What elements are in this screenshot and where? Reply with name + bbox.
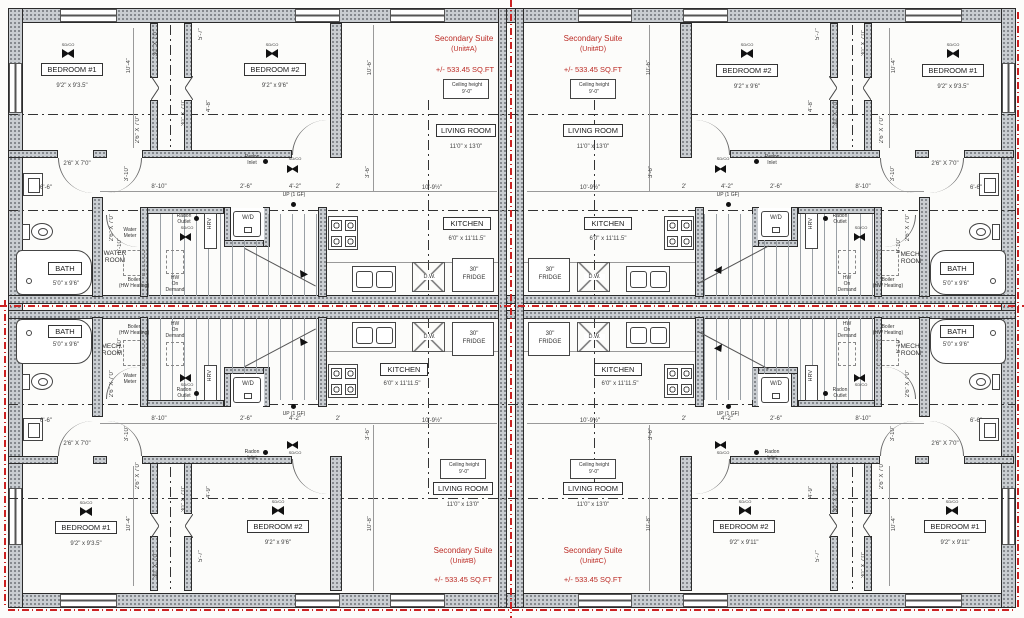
radon-point — [194, 216, 199, 221]
suite-title: Secondary Suite — [553, 34, 633, 43]
sdco-label: SD/CO — [74, 501, 98, 506]
hw-box — [166, 250, 184, 274]
wall — [330, 456, 342, 591]
kitchen-sink — [626, 322, 670, 348]
burner — [345, 384, 356, 395]
fridge-label: 30" — [453, 331, 495, 338]
dimension-label: 10'-4" — [126, 58, 132, 73]
wd-door — [772, 227, 780, 233]
radon-inlet-note: Inlet — [240, 456, 264, 462]
dimension-label: 2'-6" — [232, 416, 260, 422]
dimension-label: 10'-9½" — [412, 418, 452, 424]
suite-title: Secondary Suite — [423, 546, 503, 555]
sdco-label: SD/CO — [712, 451, 734, 456]
tub-drain — [26, 278, 32, 284]
door-size-label: 2'6" X 7'0" — [879, 462, 885, 489]
dimension-label: 2'-6" — [232, 184, 260, 190]
door-size-label: 2'6" X 7'0" — [109, 214, 115, 241]
dimension-label: 6'-10" — [117, 238, 123, 253]
up-label: UP (1 GF) — [712, 193, 744, 199]
closet-size-label: 30" X 7'0" — [153, 552, 159, 578]
closet-rod — [170, 25, 171, 147]
dimension-label: 4'-2" — [713, 184, 741, 190]
sdco-label: SD/CO — [176, 383, 198, 388]
water-meter-note: Meter — [118, 380, 142, 386]
burner — [681, 220, 692, 231]
smoke-detector-icon — [739, 506, 751, 515]
sdco-label: SD/CO — [733, 500, 757, 505]
window — [390, 9, 445, 22]
suite-area: +/- 533.45 SQ.FT — [552, 576, 634, 585]
radon-outlet-note: Outlet — [828, 220, 852, 226]
wall — [830, 536, 838, 591]
wall — [142, 456, 292, 464]
room-size-bedroom2: 9'2" x 9'6" — [717, 84, 777, 91]
room-size-bedroom1: 9'2" x 9'11" — [925, 540, 985, 547]
radon-point — [194, 391, 199, 396]
hrv-unit: HRV — [204, 365, 217, 401]
sink-bowl — [650, 327, 667, 344]
room-size-bath: 5'0" x 9'6" — [38, 342, 94, 349]
boiler-box — [123, 250, 145, 276]
dimension-label: 3'-6" — [648, 428, 654, 440]
smoke-detector-icon — [741, 49, 753, 58]
stove — [328, 364, 358, 398]
door-size-label: 2'6" X 7'0" — [926, 441, 964, 447]
dishwasher: D.W. — [412, 322, 445, 352]
toilet — [31, 373, 53, 390]
room-size-bedroom2: 9'2" x 9'6" — [245, 83, 305, 90]
room-label-bedroom2: BEDROOM #2 — [716, 64, 778, 77]
window — [578, 594, 632, 607]
hw-on-demand-note: Demand — [830, 288, 864, 294]
burner — [331, 220, 342, 231]
door-size-label: 2'6" X 7'0" — [109, 370, 115, 397]
closet-rod — [852, 25, 853, 147]
ceiling-line1: Ceiling height — [571, 463, 617, 469]
dimension-label: 3'-6" — [365, 166, 371, 178]
room-label-bath: BATH — [940, 325, 974, 338]
room-size-bedroom2: 9'2" x 9'6" — [248, 540, 308, 547]
room-label-bedroom1: BEDROOM #1 — [55, 521, 117, 534]
dimension-line — [889, 466, 890, 586]
dimension-label: 3'-6" — [648, 166, 654, 178]
room-size-kitchen: 6'0" x 11'11.5" — [591, 381, 649, 388]
closet-bifold-icon — [185, 76, 193, 100]
window — [390, 594, 445, 607]
dw-label: D.W. — [584, 334, 605, 340]
sdco-label: SD/CO — [712, 157, 734, 162]
door-size-label: 2'6" X 7'0" — [58, 161, 96, 167]
closet-size-label: 30" X 7'0" — [833, 100, 839, 126]
radon-point — [823, 216, 828, 221]
dimension-label: 2' — [332, 416, 344, 422]
suite-title: Secondary Suite — [553, 546, 633, 555]
room-size-bedroom1: 9'2" x 9'3.5" — [56, 541, 116, 548]
dw-label: D.W. — [584, 274, 605, 280]
burner — [681, 236, 692, 247]
room-label-bedroom1: BEDROOM #1 — [922, 64, 984, 77]
sink-bowl — [376, 271, 393, 288]
hrv-label: HRV — [207, 218, 213, 230]
wall — [184, 23, 192, 78]
wd-door — [244, 393, 252, 399]
dimension-line — [373, 425, 374, 591]
wd-label: W/D — [234, 215, 262, 222]
door-arc — [695, 120, 730, 155]
wall — [150, 456, 158, 514]
toilet-bowl — [976, 378, 986, 386]
dimension-label: 3'-10" — [890, 426, 896, 441]
suite-unit: (Unit#A) — [434, 46, 494, 54]
smoke-detector-icon — [62, 49, 74, 58]
burner — [681, 384, 692, 395]
dimension-label: 8'-10" — [843, 416, 883, 422]
wall — [142, 150, 292, 158]
closet-size-label: 30" X 7'0" — [861, 552, 867, 578]
suite-area: +/- 533.45 SQ.FT — [552, 66, 634, 75]
room-label-living: LIVING ROOM — [433, 482, 493, 495]
dimension-label: 6'-6" — [966, 418, 986, 424]
fire-separation-line — [510, 0, 512, 618]
window — [9, 63, 22, 113]
room-size-bath: 5'0" x 9'6" — [928, 281, 984, 288]
room-size-living: 11'0" x 13'0" — [437, 144, 495, 151]
window — [60, 594, 117, 607]
burner — [681, 368, 692, 379]
dimension-label: 6'-6" — [966, 185, 986, 191]
toilet-bowl — [976, 228, 986, 236]
dishwasher: D.W. — [577, 322, 610, 352]
dishwasher: D.W. — [577, 262, 610, 292]
wall — [730, 456, 880, 464]
wall — [318, 317, 327, 407]
toilet — [31, 223, 53, 240]
wall — [864, 456, 872, 514]
fridge: 30" FRIDGE — [528, 258, 570, 292]
sink-bowl — [630, 327, 647, 344]
smoke-detector-icon — [715, 441, 726, 449]
suite-unit: (Unit#D) — [563, 46, 623, 54]
radon-inlet-note: Inlet — [760, 161, 784, 167]
smoke-detector-icon — [80, 507, 92, 516]
ceiling-height-note: Ceiling height 9'-0" — [443, 79, 489, 99]
door-size-label: 2'6" X 7'0" — [905, 214, 911, 241]
fridge-label: FRIDGE — [529, 339, 571, 346]
smoke-detector-icon — [287, 165, 298, 173]
toilet-tank — [992, 374, 1000, 390]
radon-point — [263, 450, 268, 455]
wd-label: W/D — [762, 381, 790, 388]
room-label-living: LIVING ROOM — [436, 124, 496, 137]
washer-dryer: W/D — [233, 377, 261, 403]
dimension-label: 10'-4" — [126, 516, 132, 531]
wall — [830, 23, 838, 78]
window — [683, 9, 728, 22]
room-size-bedroom2: 9'2" x 9'11" — [714, 540, 774, 547]
floor-plan: W/D HRV D.W. 30" FRIDGE BATH 5'0" x 9'6"… — [0, 0, 1024, 618]
closet-bifold-icon — [185, 514, 193, 538]
dimension-line — [100, 191, 497, 192]
window — [295, 594, 340, 607]
smoke-detector-icon — [715, 165, 726, 173]
sdco-label: SD/CO — [940, 500, 964, 505]
closet-bifold-icon — [863, 76, 871, 100]
party-wall — [515, 8, 524, 608]
room-label-bedroom1: BEDROOM #1 — [924, 520, 986, 533]
wd-door — [244, 227, 252, 233]
toilet-tank — [992, 224, 1000, 240]
window — [905, 594, 962, 607]
room-size-bath: 5'0" x 9'6" — [38, 281, 94, 288]
up-point — [291, 404, 296, 409]
wall — [8, 8, 1016, 23]
hw-on-demand-note: Demand — [158, 288, 192, 294]
room-label-bath: BATH — [48, 325, 82, 338]
kitchen-sink — [626, 266, 670, 292]
boiler-note: (HW Heating) — [862, 331, 914, 337]
kitchen-sink — [352, 266, 396, 292]
room-size-bedroom1: 9'2" x 9'3.5" — [42, 83, 102, 90]
room-label-bath: BATH — [48, 262, 82, 275]
suite-title: Secondary Suite — [424, 34, 504, 43]
hw-box — [166, 342, 184, 366]
dimension-label: 3'-6" — [365, 428, 371, 440]
wall — [8, 150, 58, 158]
ceiling-line2: 9'-0" — [444, 90, 490, 96]
smoke-detector-icon — [266, 49, 278, 58]
room-label-bedroom2: BEDROOM #2 — [713, 520, 775, 533]
ceiling-line2: 9'-0" — [571, 470, 617, 476]
radon-point — [754, 450, 759, 455]
wall — [915, 150, 929, 158]
dimension-label: 5'-7" — [815, 28, 821, 40]
door-arc — [880, 421, 915, 456]
smoke-detector-icon — [946, 506, 958, 515]
sdco-label: SD/CO — [260, 43, 284, 48]
closet-bifold-icon — [829, 514, 837, 538]
hw-on-demand-note: Demand — [830, 334, 864, 340]
dimension-label: 6'-10" — [896, 338, 902, 353]
hrv-unit: HRV — [805, 365, 818, 401]
fire-separation-line — [4, 300, 6, 606]
fire-separation-line — [0, 305, 1024, 307]
party-wall — [8, 295, 1016, 304]
wall — [919, 317, 930, 417]
wall — [8, 593, 1016, 608]
room-size-bath: 5'0" x 9'6" — [928, 342, 984, 349]
closet-size-label: 30" X 7'0" — [833, 486, 839, 512]
suite-area: +/- 533.45 SQ.FT — [424, 66, 506, 75]
door-arc — [695, 459, 730, 494]
wall — [915, 456, 929, 464]
fridge-label: FRIDGE — [453, 275, 495, 282]
wall — [184, 536, 192, 591]
window — [578, 9, 632, 22]
dimension-label: 4'-8" — [206, 100, 212, 112]
dimension-label: 2'-6" — [762, 184, 790, 190]
washer-dryer: W/D — [233, 211, 261, 237]
dimension-label: 10'-6" — [646, 60, 652, 75]
wall — [964, 150, 1014, 158]
stove — [328, 216, 358, 250]
dimension-label: 2'-6" — [762, 416, 790, 422]
door-size-label: 2'6" X 7'0" — [905, 370, 911, 397]
dimension-label: 10'-8" — [646, 516, 652, 531]
sdco-label: SD/CO — [284, 157, 306, 162]
room-size-living: 11'0" x 13'0" — [564, 144, 622, 151]
door-arc — [292, 459, 327, 494]
fire-separation-line — [8, 609, 1016, 611]
kitchen-sink — [352, 322, 396, 348]
dimension-label: 4'-8" — [808, 100, 814, 112]
burner — [667, 368, 678, 379]
hrv-unit: HRV — [805, 213, 818, 249]
wd-label: W/D — [762, 215, 790, 222]
window — [60, 9, 117, 22]
ceiling-height-note: Ceiling height 9'-0" — [570, 79, 616, 99]
sink-bowl — [356, 271, 373, 288]
wall — [680, 23, 692, 158]
dimension-label: 3'-10" — [124, 426, 130, 441]
room-label-bedroom1: BEDROOM #1 — [41, 63, 103, 76]
closet-bifold-icon — [151, 76, 159, 100]
sink-bowl — [650, 271, 667, 288]
wall — [93, 150, 107, 158]
wall — [318, 207, 327, 297]
fridge-label: 30" — [529, 267, 571, 274]
dimension-label: 3'-10" — [124, 166, 130, 181]
sdco-label: SD/CO — [850, 226, 872, 231]
radon-point — [823, 391, 828, 396]
door-arc — [929, 421, 964, 456]
closet-size-label: 30" X 7'0" — [153, 30, 159, 56]
wd-label: W/D — [234, 381, 262, 388]
radon-point — [754, 159, 759, 164]
door-arc — [58, 421, 93, 456]
door-size-label: 2'6" X 7'0" — [926, 161, 964, 167]
closet-bifold-icon — [151, 514, 159, 538]
wall — [964, 456, 1014, 464]
smoke-detector-icon — [947, 49, 959, 58]
burner — [667, 384, 678, 395]
dimension-label: 8'-10" — [139, 184, 179, 190]
vanity-basin — [984, 423, 996, 438]
room-label-living: LIVING ROOM — [563, 482, 623, 495]
smoke-detector-icon — [287, 441, 298, 449]
boiler-box — [123, 340, 145, 366]
dimension-label: 5'-7" — [198, 550, 204, 562]
dw-label: D.W. — [419, 334, 440, 340]
fridge-label: FRIDGE — [453, 339, 495, 346]
washer-dryer: W/D — [761, 377, 789, 403]
closet-rod — [170, 467, 171, 589]
dimension-label: 6'-10" — [896, 238, 902, 253]
burner — [331, 384, 342, 395]
sink-bowl — [356, 327, 373, 344]
room-size-bedroom1: 9'2" x 9'3.5" — [923, 84, 983, 91]
sdco-label: SD/CO — [56, 43, 80, 48]
hrv-unit: HRV — [204, 213, 217, 249]
dimension-line — [889, 28, 890, 148]
sdco-label: SD/CO — [941, 43, 965, 48]
sink-bowl — [630, 271, 647, 288]
ceiling-line2: 9'-0" — [571, 90, 617, 96]
burner — [345, 236, 356, 247]
room-label-bedroom2: BEDROOM #2 — [244, 63, 306, 76]
dimension-label: 10'-8" — [367, 516, 373, 531]
closet-size-label: 30" X 7'0" — [181, 486, 187, 512]
dimension-label: 8'-10" — [139, 416, 179, 422]
hrv-label: HRV — [207, 370, 213, 382]
dimension-label: 4'-2" — [281, 184, 309, 190]
ceiling-line1: Ceiling height — [444, 83, 490, 89]
hrv-label: HRV — [808, 370, 814, 382]
room-label-kitchen: KITCHEN — [380, 363, 428, 376]
door-arc — [292, 120, 327, 155]
sink-bowl — [376, 327, 393, 344]
burner — [667, 236, 678, 247]
fridge: 30" FRIDGE — [528, 322, 570, 356]
sdco-label: SD/CO — [176, 226, 198, 231]
door-size-label: 2'6" X 7'0" — [58, 441, 96, 447]
toilet-bowl — [38, 228, 48, 236]
smoke-detector-icon — [272, 506, 284, 515]
fridge-label: FRIDGE — [529, 275, 571, 282]
wall — [142, 400, 224, 407]
toilet-tank — [22, 224, 30, 240]
burner — [667, 220, 678, 231]
room-size-kitchen: 6'0" x 11'11.5" — [438, 236, 496, 243]
wall — [680, 456, 692, 591]
wall — [730, 150, 880, 158]
boiler-note: (HW Heating) — [108, 284, 160, 290]
washer-dryer: W/D — [761, 211, 789, 237]
window — [295, 9, 340, 22]
window — [9, 488, 22, 545]
dishwasher: D.W. — [412, 262, 445, 292]
radon-point — [263, 159, 268, 164]
dimension-label: 10'-6" — [367, 60, 373, 75]
up-label: UP (1 GF) — [278, 193, 310, 199]
radon-outlet-note: Outlet — [828, 394, 852, 400]
dimension-label: 4'-9" — [808, 486, 814, 498]
room-label-kitchen: KITCHEN — [584, 217, 632, 230]
dimension-label: 10'-4" — [891, 58, 897, 73]
sdco-label: SD/CO — [266, 500, 290, 505]
dimension-label: 5'-7" — [815, 550, 821, 562]
dimension-line — [649, 425, 650, 591]
closet-bifold-icon — [829, 76, 837, 100]
burner — [331, 368, 342, 379]
tub-drain — [990, 278, 996, 284]
burner — [345, 220, 356, 231]
fridge-label: 30" — [529, 331, 571, 338]
room-label-living: LIVING ROOM — [563, 124, 623, 137]
party-wall — [498, 8, 507, 608]
dimension-label: 2' — [332, 184, 344, 190]
window — [1002, 488, 1015, 545]
sdco-label: SD/CO — [284, 451, 306, 456]
closet-rod — [852, 467, 853, 589]
dimension-label: 6'-6" — [36, 418, 56, 424]
room-size-living: 11'0" x 13'0" — [564, 502, 622, 509]
radon-inlet-note: Inlet — [240, 161, 264, 167]
dimension-label: 4'-2" — [713, 416, 741, 422]
sdco-label: SD/CO — [850, 383, 872, 388]
ceiling-line1: Ceiling height — [441, 463, 487, 469]
room-size-living: 11'0" x 13'0" — [434, 502, 492, 509]
